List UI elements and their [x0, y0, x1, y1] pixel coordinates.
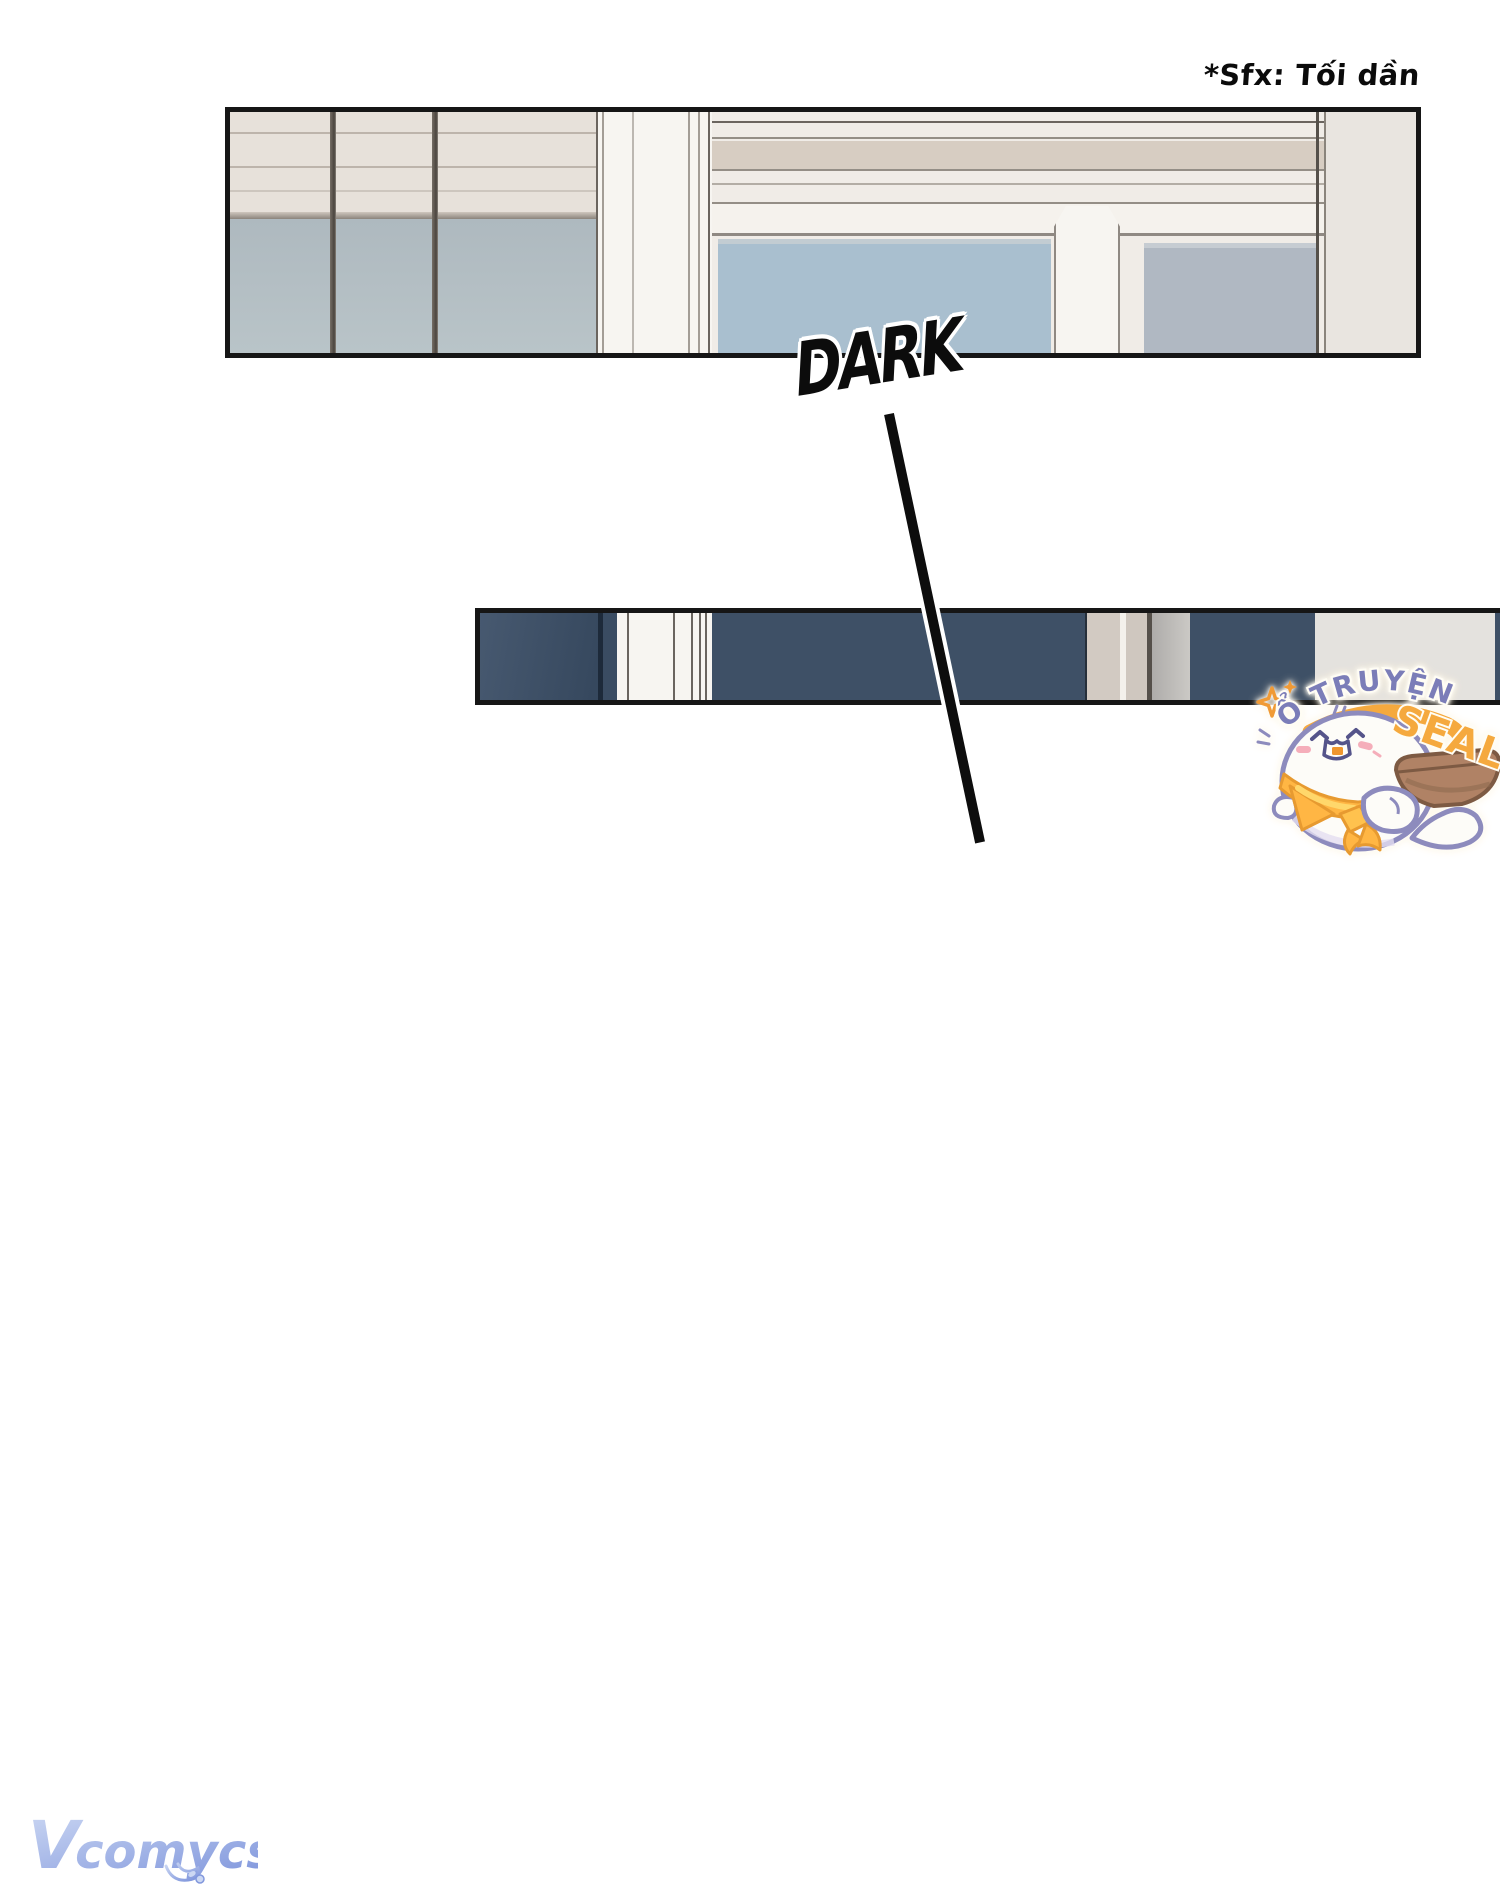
wall-pillar: [596, 112, 712, 353]
pillar-trim-line: [673, 613, 675, 700]
trim-line: [712, 183, 1324, 185]
window-frame-header: [712, 202, 1324, 236]
main-window-wall: [712, 112, 1324, 353]
right-wall-column: [1324, 112, 1416, 353]
pillar-trim-line: [691, 613, 693, 700]
pillar-stripe: [617, 613, 712, 700]
pillar-trim-line: [705, 613, 707, 700]
sfx-translation-caption: *Sfx: Tối dần: [1149, 58, 1421, 92]
pillar-trim-line: [602, 112, 604, 353]
pillar-trim-line: [708, 112, 710, 353]
pillar-trim-line: [688, 112, 690, 353]
window-sill: [230, 212, 596, 219]
dark-window-glass: [603, 613, 617, 700]
comic-page: *Sfx: Tối dần: [0, 0, 1500, 1897]
publisher-logo: Vcomycs: [26, 1802, 258, 1892]
seal-mascot-watermark: Ổ TRUYỆN: [1254, 638, 1500, 878]
frame-stripe: [1152, 613, 1190, 700]
publisher-logo-text: Vcomycs: [28, 1807, 258, 1884]
dark-window-glass: [480, 613, 600, 700]
blind-slat-line: [230, 166, 596, 168]
door-glass-grey: [1144, 243, 1317, 353]
wall-edge-line: [1316, 112, 1319, 353]
ceiling-line: [712, 121, 1324, 123]
left-window: [230, 112, 596, 353]
blind-slat-line: [230, 132, 596, 134]
window-mullion: [432, 112, 438, 353]
pillar-trim-line: [627, 613, 629, 700]
frame-stripe: [1087, 613, 1120, 700]
frame-stripe-cluster: [1085, 613, 1190, 700]
trim-line: [712, 137, 1324, 139]
pillar-trim-line: [698, 112, 700, 353]
window-mullion: [330, 112, 336, 353]
window-glass-left: [230, 219, 596, 353]
window-blinds: [230, 112, 596, 218]
window-center-post: [1054, 206, 1120, 353]
blind-slat-line: [230, 190, 596, 192]
tan-valance-band: [712, 141, 1324, 171]
pillar-trim-line: [699, 613, 701, 700]
panel-bright-interior: [225, 107, 1421, 358]
seal-flipper: [1363, 788, 1417, 831]
pillar-trim-line: [632, 112, 634, 353]
frame-stripe: [1126, 613, 1147, 700]
pillar-trim-line: [596, 112, 598, 353]
